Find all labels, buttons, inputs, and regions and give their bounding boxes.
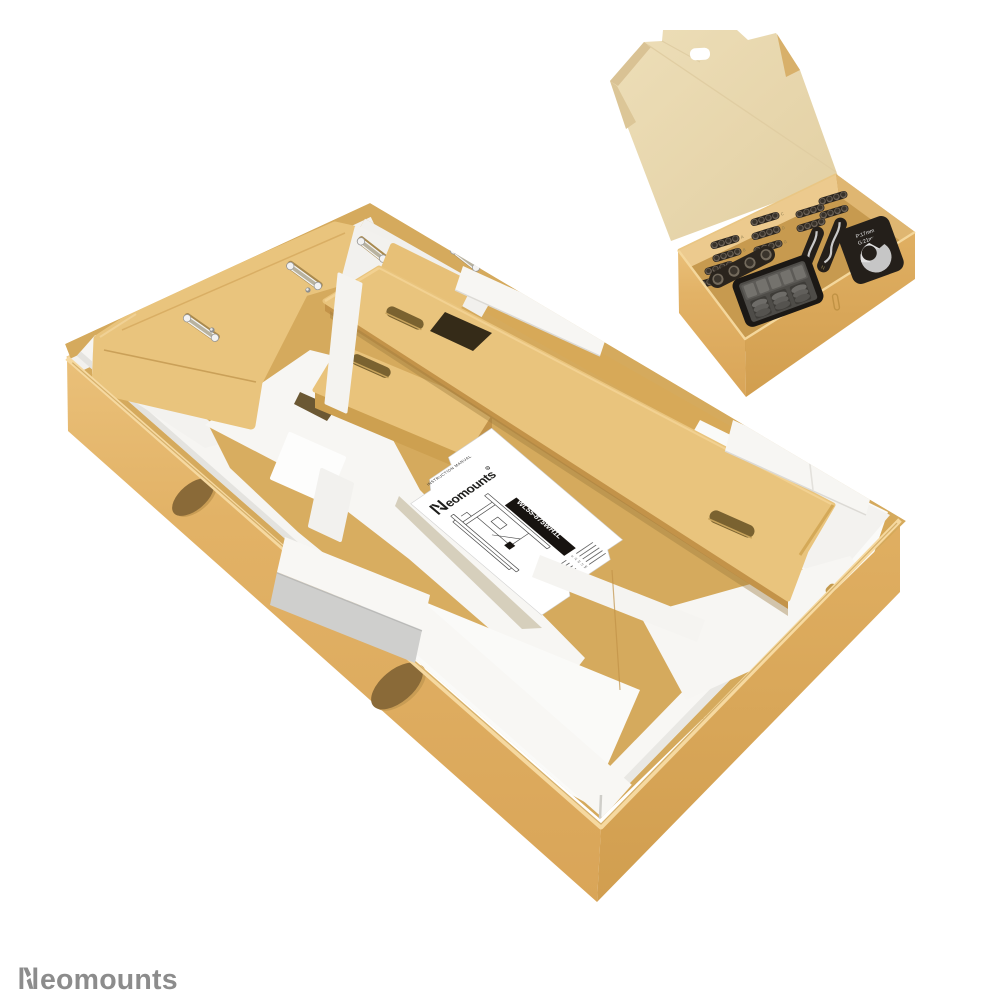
svg-text:eomounts: eomounts: [40, 964, 178, 996]
